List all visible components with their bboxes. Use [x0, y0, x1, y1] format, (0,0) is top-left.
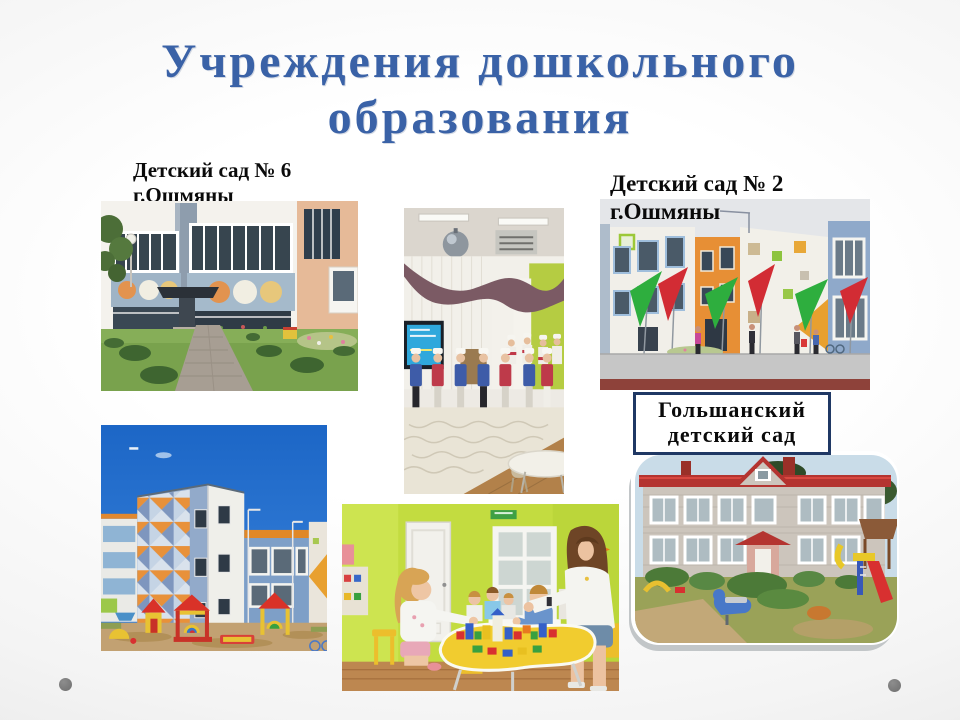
golshany-line-1: Гольшанский	[636, 397, 828, 422]
photo-playroom-children	[342, 504, 619, 691]
photo-golshansky-building	[623, 449, 909, 659]
photo-kindergarten-6-building	[101, 201, 358, 391]
golshany-line-2: детский сад	[636, 422, 828, 447]
caption-k2-line-1: Детский сад № 2	[610, 170, 783, 198]
caption-k2-line-2: г.Ошмяны	[610, 198, 783, 226]
slide-title: Учреждения дошкольного образования	[0, 34, 960, 146]
decoration-dot-left	[59, 678, 72, 691]
decoration-dot-right	[888, 679, 901, 692]
caption-kindergarten-2: Детский сад № 2 г.Ошмяны	[610, 170, 783, 225]
golshansky-label-box: Гольшанский детский сад	[633, 392, 831, 455]
title-line-2: образования	[0, 90, 960, 146]
title-line-1: Учреждения дошкольного	[0, 34, 960, 90]
slide-background: Учреждения дошкольного образования Детск…	[0, 0, 960, 720]
photo-hall-performance	[404, 208, 564, 494]
caption-k6-line-1: Детский сад № 6	[133, 158, 291, 183]
photo-kindergarten-2-building	[600, 199, 870, 390]
photo-blue-building-playground	[101, 425, 327, 651]
